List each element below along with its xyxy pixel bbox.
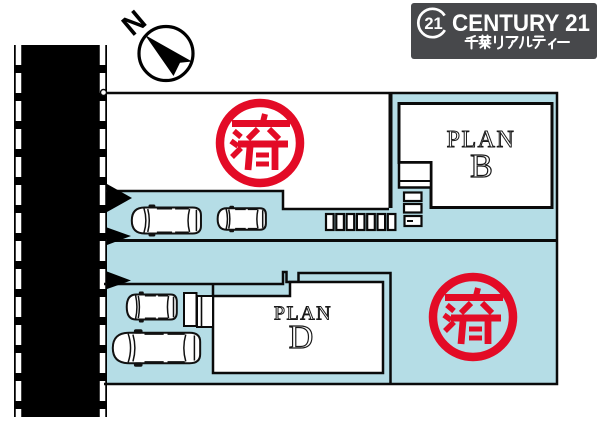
svg-text:21: 21 bbox=[424, 15, 442, 33]
svg-text:D: D bbox=[289, 319, 314, 356]
svg-text:B: B bbox=[470, 148, 493, 185]
svg-text:CENTURY 21: CENTURY 21 bbox=[452, 10, 590, 37]
